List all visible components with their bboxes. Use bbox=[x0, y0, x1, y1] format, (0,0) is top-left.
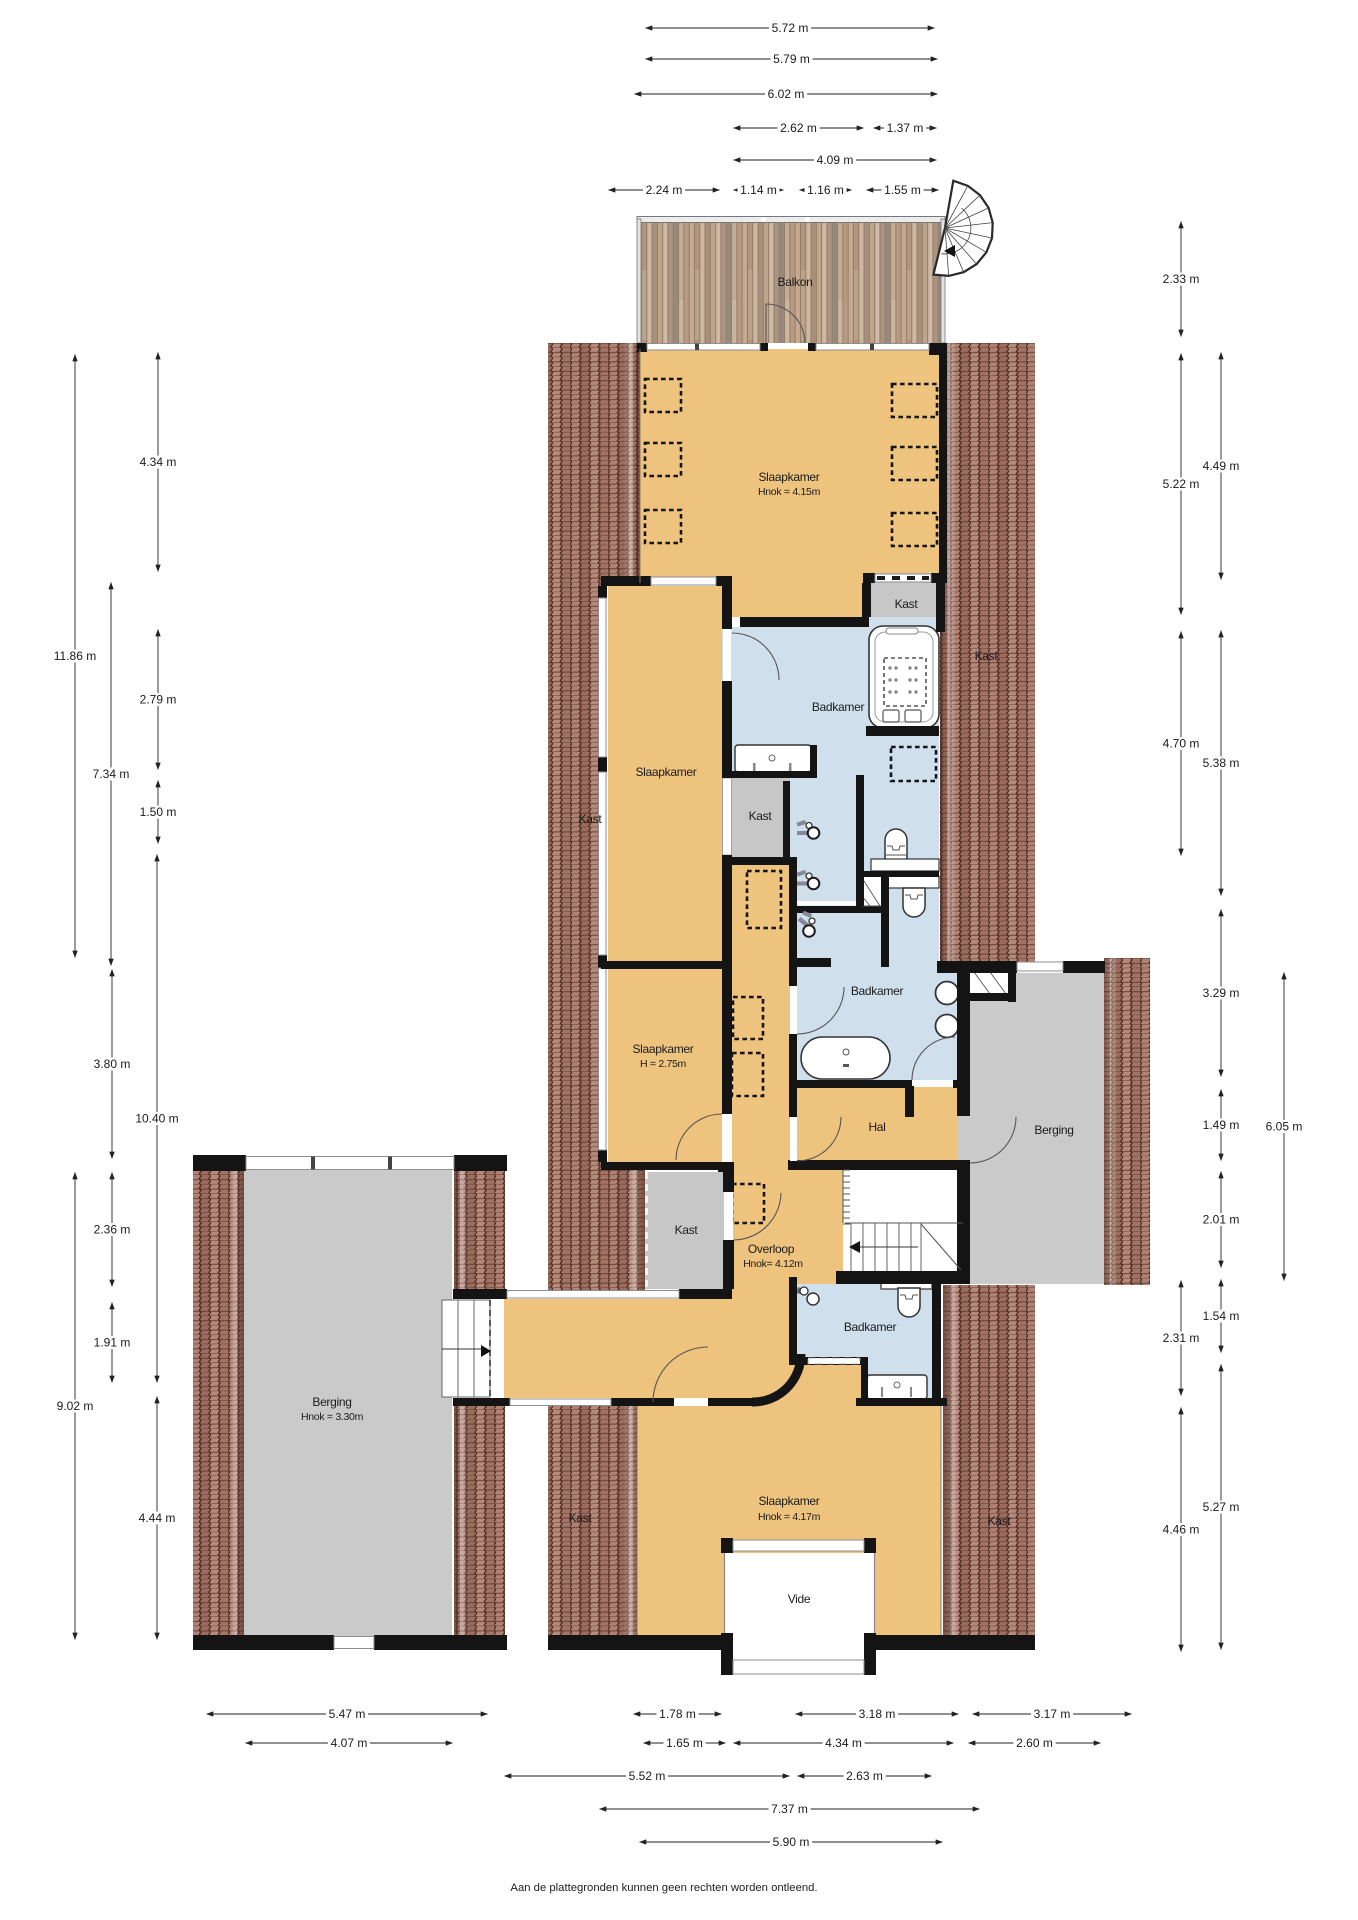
svg-text:Kast: Kast bbox=[988, 1514, 1012, 1528]
svg-text:4.07 m: 4.07 m bbox=[331, 1736, 368, 1750]
svg-text:4.70 m: 4.70 m bbox=[1163, 737, 1200, 751]
svg-text:2.62 m: 2.62 m bbox=[780, 121, 817, 135]
svg-text:1.78 m: 1.78 m bbox=[659, 1707, 696, 1721]
svg-text:Aan de plattegronden kunnen ge: Aan de plattegronden kunnen geen rechten… bbox=[510, 1882, 817, 1894]
svg-text:6.05 m: 6.05 m bbox=[1266, 1120, 1303, 1134]
svg-text:Hal: Hal bbox=[868, 1120, 885, 1134]
svg-text:Kast: Kast bbox=[675, 1223, 699, 1237]
svg-text:1.54 m: 1.54 m bbox=[1203, 1309, 1240, 1323]
svg-text:Hnok = 4.17m: Hnok = 4.17m bbox=[758, 1511, 821, 1523]
svg-text:1.91 m: 1.91 m bbox=[94, 1336, 131, 1350]
svg-text:Kast: Kast bbox=[975, 649, 999, 663]
svg-text:2.79 m: 2.79 m bbox=[140, 693, 177, 707]
svg-text:5.52 m: 5.52 m bbox=[629, 1769, 666, 1783]
svg-text:Balkon: Balkon bbox=[778, 275, 813, 289]
svg-text:5.47 m: 5.47 m bbox=[329, 1707, 366, 1721]
svg-text:Hnok = 3.30m: Hnok = 3.30m bbox=[301, 1411, 364, 1423]
svg-text:3.29 m: 3.29 m bbox=[1203, 986, 1240, 1000]
svg-text:1.55 m: 1.55 m bbox=[884, 183, 921, 197]
svg-text:Slaapkamer: Slaapkamer bbox=[758, 470, 819, 484]
svg-text:4.09 m: 4.09 m bbox=[817, 153, 854, 167]
svg-text:1.16 m: 1.16 m bbox=[807, 183, 844, 197]
svg-text:2.60 m: 2.60 m bbox=[1016, 1736, 1053, 1750]
svg-text:5.22 m: 5.22 m bbox=[1163, 477, 1200, 491]
svg-text:Kast: Kast bbox=[749, 809, 773, 823]
svg-text:1.49 m: 1.49 m bbox=[1203, 1118, 1240, 1132]
svg-text:Badkamer: Badkamer bbox=[812, 700, 865, 714]
svg-text:4.46 m: 4.46 m bbox=[1163, 1523, 1200, 1537]
svg-text:7.34 m: 7.34 m bbox=[93, 767, 130, 781]
svg-text:2.33 m: 2.33 m bbox=[1163, 272, 1200, 286]
svg-text:Slaapkamer: Slaapkamer bbox=[635, 765, 696, 779]
svg-text:Kast: Kast bbox=[895, 597, 919, 611]
svg-text:Vide: Vide bbox=[788, 1592, 811, 1606]
svg-text:2.63 m: 2.63 m bbox=[846, 1769, 883, 1783]
svg-text:4.49 m: 4.49 m bbox=[1203, 459, 1240, 473]
svg-text:Hnok= 4.12m: Hnok= 4.12m bbox=[743, 1258, 803, 1270]
svg-text:10.40 m: 10.40 m bbox=[135, 1112, 178, 1126]
svg-text:2.31 m: 2.31 m bbox=[1163, 1331, 1200, 1345]
svg-text:Badkamer: Badkamer bbox=[844, 1320, 897, 1334]
svg-text:1.65 m: 1.65 m bbox=[666, 1736, 703, 1750]
svg-text:Badkamer: Badkamer bbox=[851, 984, 904, 998]
svg-text:3.18 m: 3.18 m bbox=[859, 1707, 896, 1721]
svg-text:2.24 m: 2.24 m bbox=[646, 183, 683, 197]
svg-text:Slaapkamer: Slaapkamer bbox=[632, 1042, 693, 1056]
svg-text:5.90 m: 5.90 m bbox=[773, 1835, 810, 1849]
svg-text:Hnok = 4.15m: Hnok = 4.15m bbox=[758, 486, 821, 498]
svg-text:Berging: Berging bbox=[312, 1395, 351, 1409]
svg-text:9.02 m: 9.02 m bbox=[57, 1399, 94, 1413]
svg-text:6.02 m: 6.02 m bbox=[768, 87, 805, 101]
svg-text:5.38 m: 5.38 m bbox=[1203, 756, 1240, 770]
svg-text:5.72 m: 5.72 m bbox=[772, 21, 809, 35]
svg-text:2.36 m: 2.36 m bbox=[94, 1223, 131, 1237]
svg-text:1.50 m: 1.50 m bbox=[140, 805, 177, 819]
svg-text:5.27 m: 5.27 m bbox=[1203, 1500, 1240, 1514]
svg-text:2.01 m: 2.01 m bbox=[1203, 1213, 1240, 1227]
svg-text:Kast: Kast bbox=[579, 812, 603, 826]
svg-text:5.79 m: 5.79 m bbox=[773, 52, 810, 66]
svg-text:11.86 m: 11.86 m bbox=[54, 649, 96, 663]
svg-text:4.44 m: 4.44 m bbox=[139, 1511, 176, 1525]
svg-text:3.80 m: 3.80 m bbox=[94, 1057, 131, 1071]
svg-text:1.14 m: 1.14 m bbox=[740, 183, 777, 197]
svg-text:4.34 m: 4.34 m bbox=[140, 455, 177, 469]
svg-text:4.34 m: 4.34 m bbox=[825, 1736, 862, 1750]
svg-text:Berging: Berging bbox=[1034, 1123, 1073, 1137]
svg-text:H = 2.75m: H = 2.75m bbox=[640, 1058, 687, 1070]
svg-text:7.37 m: 7.37 m bbox=[771, 1802, 808, 1816]
svg-text:Kast: Kast bbox=[569, 1511, 593, 1525]
svg-text:1.37 m: 1.37 m bbox=[887, 121, 924, 135]
svg-text:Overloop: Overloop bbox=[748, 1242, 795, 1256]
svg-text:3.17 m: 3.17 m bbox=[1034, 1707, 1071, 1721]
svg-text:Slaapkamer: Slaapkamer bbox=[758, 1494, 819, 1508]
